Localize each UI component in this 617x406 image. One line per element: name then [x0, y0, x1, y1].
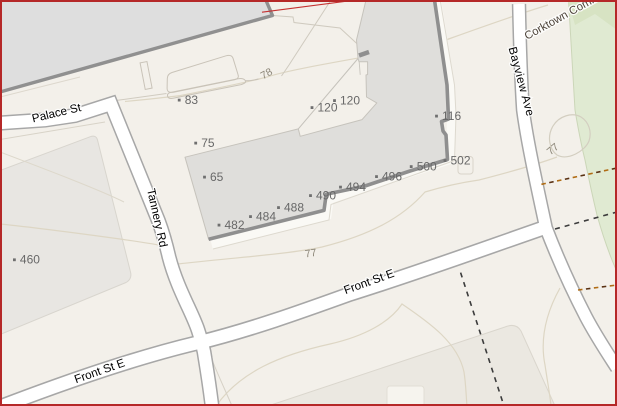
- svg-text:120: 120: [318, 101, 338, 115]
- svg-text:502: 502: [451, 154, 471, 168]
- svg-text:75: 75: [201, 136, 215, 150]
- svg-text:460: 460: [20, 253, 40, 267]
- svg-text:120: 120: [340, 94, 360, 108]
- svg-text:494: 494: [346, 180, 366, 194]
- svg-text:482: 482: [225, 218, 245, 232]
- svg-text:496: 496: [382, 170, 402, 184]
- svg-text:484: 484: [256, 210, 276, 224]
- svg-text:83: 83: [185, 93, 199, 107]
- svg-text:116: 116: [442, 109, 461, 123]
- svg-text:488: 488: [284, 201, 304, 215]
- svg-text:77: 77: [304, 247, 318, 261]
- svg-text:500: 500: [417, 160, 437, 174]
- svg-text:490: 490: [316, 189, 336, 203]
- svg-text:65: 65: [210, 170, 224, 184]
